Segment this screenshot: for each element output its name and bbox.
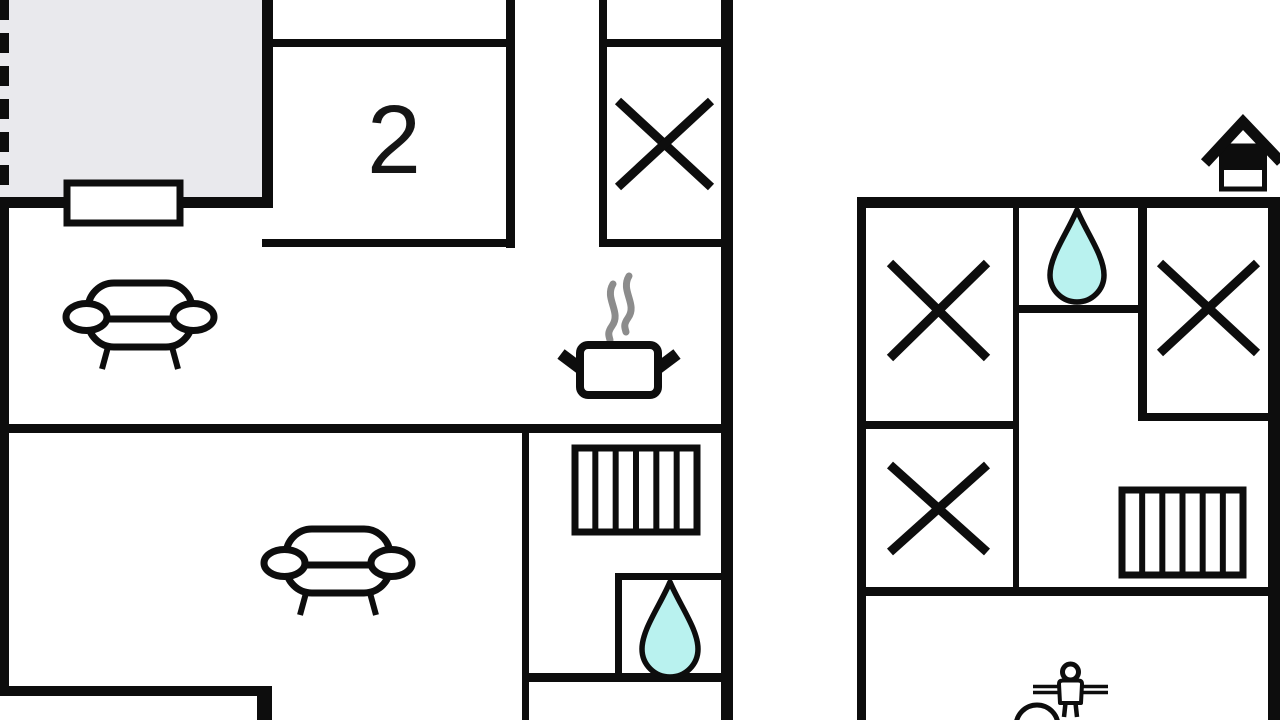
living-bottom-wall [0, 686, 272, 696]
bathroom-top-wall [615, 573, 721, 580]
stairs-symbol-right [1122, 490, 1243, 575]
right-building-top-wall [857, 197, 1280, 208]
left-outer-wall [0, 197, 9, 696]
bedroom3-bottom-wall [1138, 413, 1280, 421]
right-building-mid-wall [857, 587, 1280, 596]
window-symbol [67, 183, 180, 223]
droproom-bottom-wall [1019, 305, 1147, 313]
person-leg [1064, 703, 1066, 717]
room2-right-wall [506, 0, 515, 248]
right-building-left-wall [857, 197, 866, 720]
floorplan-page: 2 [0, 0, 1280, 720]
sofa-armrest-left [66, 304, 107, 331]
terrace-right-wall [262, 0, 273, 208]
bathroom-left-wall [615, 573, 622, 679]
left-building-right-wall [721, 0, 733, 720]
right-building-right-wall [1268, 197, 1280, 720]
bedroom2-bottom-wall [866, 421, 1017, 429]
pot-body [580, 345, 658, 395]
bedroom1-bottom-wall [599, 239, 721, 247]
terrace-area [0, 0, 273, 204]
person-leg [1076, 703, 1078, 717]
stairs-symbol-left [575, 448, 697, 532]
room2-bottom-wall [262, 239, 515, 247]
bedroom1-top-wall [599, 39, 721, 47]
floor-plan: 2 [0, 0, 1280, 720]
living-bottom-return-wall [257, 686, 272, 720]
room-number-label: 2 [367, 85, 421, 194]
room2-top-wall [273, 39, 515, 47]
bedroom1-left-wall [599, 0, 607, 247]
bathroom-bottom-wall [524, 673, 721, 682]
left-building-mid-wall [0, 424, 733, 433]
right-building-inner-vertical-wall [1013, 208, 1019, 592]
droproom-right-wall [1138, 208, 1147, 421]
house-band [1222, 146, 1265, 170]
sofa-armrest-right [371, 550, 412, 577]
person-head [1063, 664, 1079, 680]
sofa-armrest-right [173, 304, 214, 331]
person-torso [1059, 681, 1082, 704]
sofa-armrest-left [264, 550, 305, 577]
